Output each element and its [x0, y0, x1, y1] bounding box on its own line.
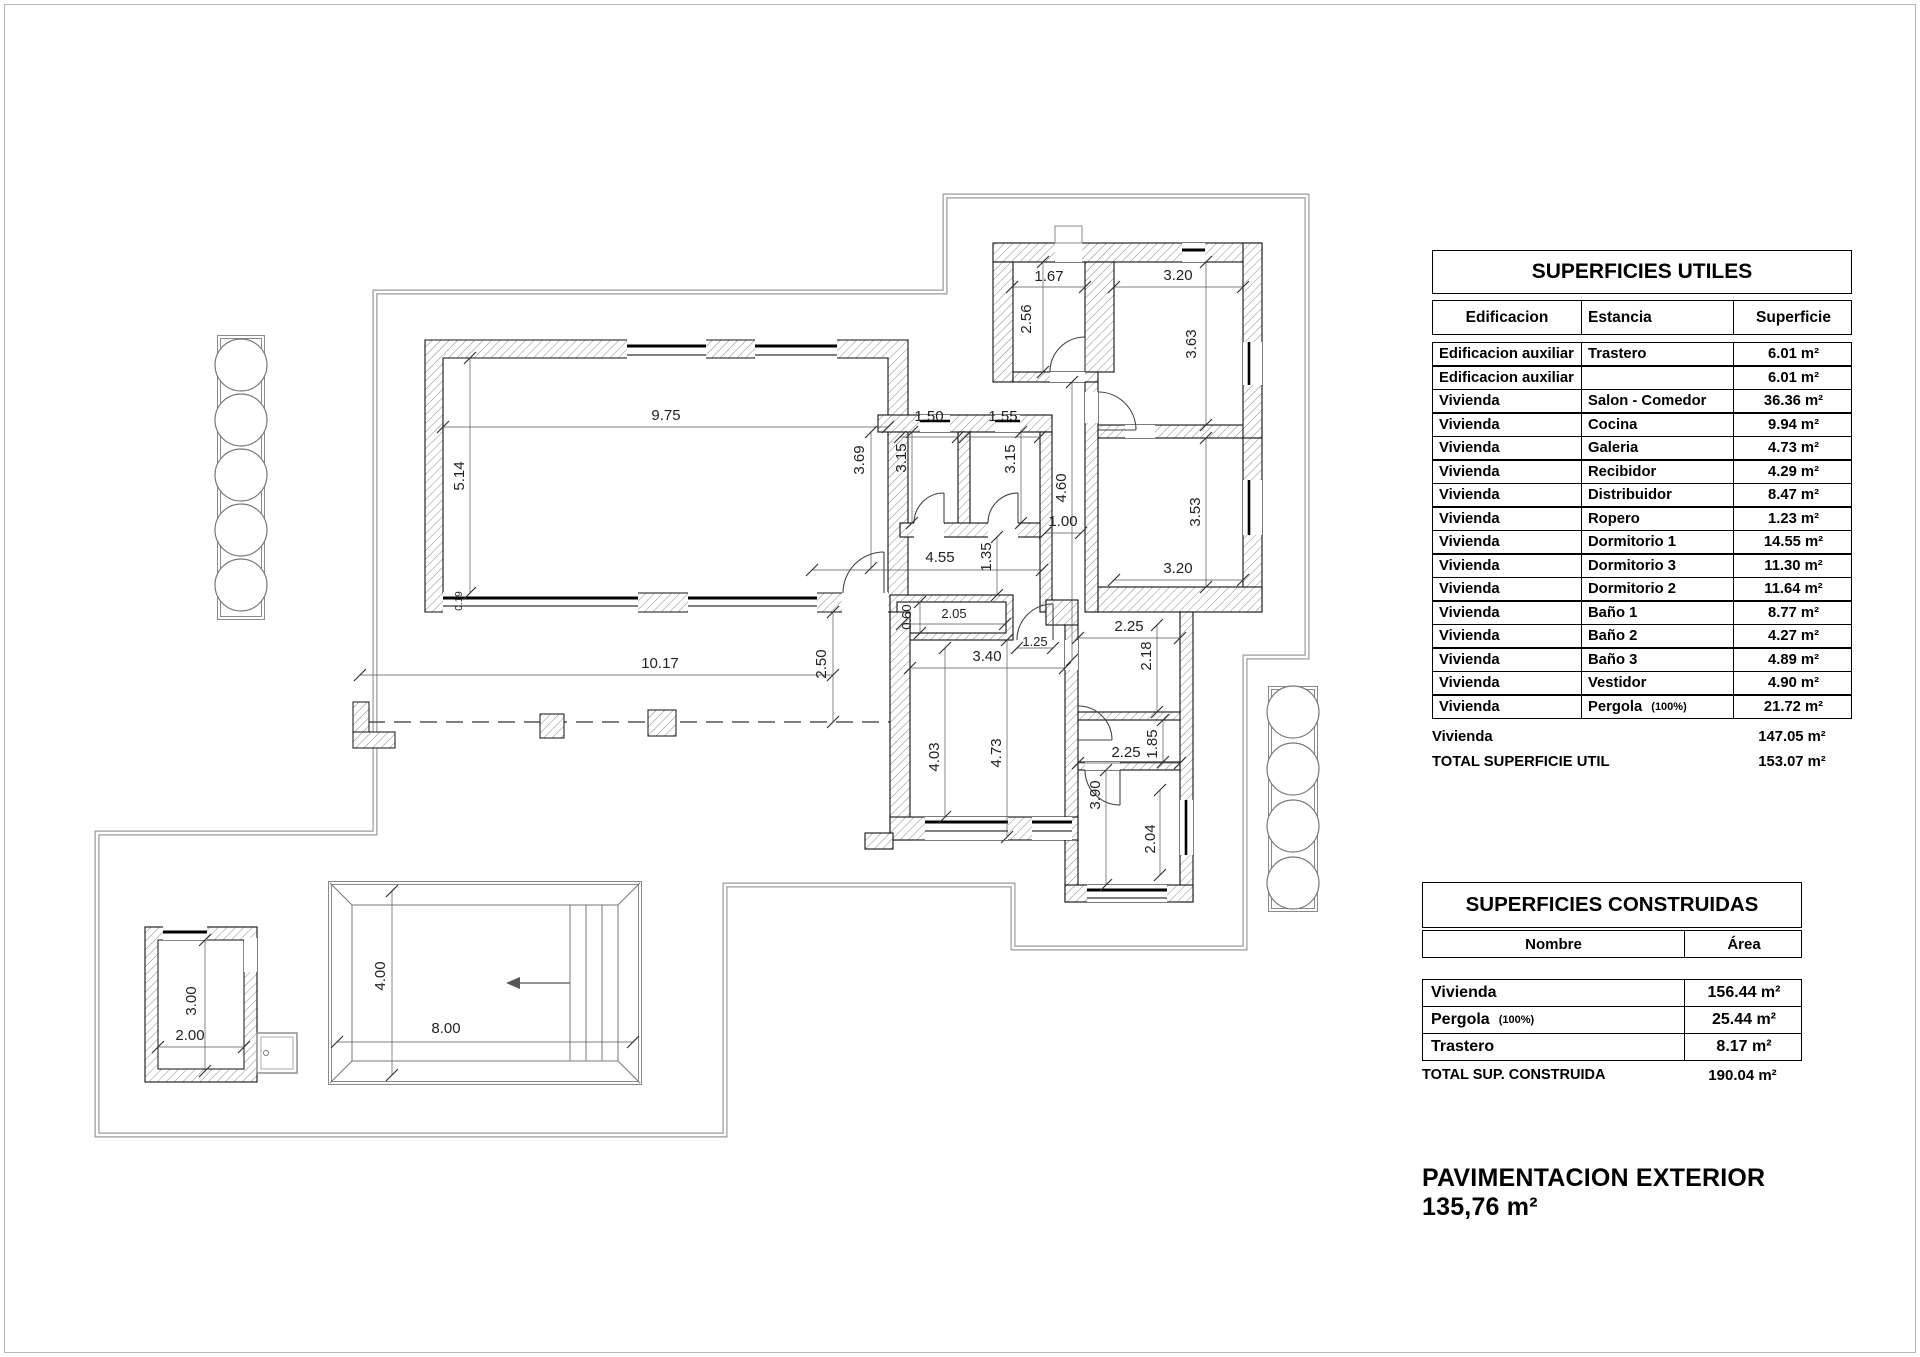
- dimension-label: 3.63: [1183, 329, 1200, 358]
- dimension-label: 4.03: [926, 742, 943, 771]
- dimension-label: 4.73: [988, 738, 1005, 767]
- col-header-area: Área: [1684, 931, 1803, 957]
- dimension-label: 5.14: [451, 461, 468, 490]
- table-row: ViviendaDormitorio 311.30 m²: [1432, 553, 1852, 578]
- table-header: Nombre Área: [1422, 930, 1802, 958]
- table-row: ViviendaDormitorio 114.55 m²: [1432, 530, 1852, 555]
- dimension-label: 3.15: [1002, 444, 1019, 473]
- col-header-edificacion: Edificacion: [1433, 301, 1581, 334]
- dimension-label: 3.15: [893, 443, 910, 472]
- pool-arrow: [506, 977, 570, 989]
- table-row: ViviendaGaleria4.73 m²: [1432, 436, 1852, 461]
- dimension-label: 1.35: [978, 542, 995, 571]
- table-row: ViviendaSalon - Comedor36.36 m²: [1432, 389, 1852, 414]
- superficies-construidas-table: SUPERFICIES CONSTRUIDAS Nombre Área Vivi…: [1422, 882, 1802, 1087]
- table-row: ViviendaCocina9.94 m²: [1432, 412, 1852, 437]
- table-title: SUPERFICIES UTILES: [1432, 250, 1852, 294]
- table-row: Edificacion auxiliar6.01 m²: [1432, 365, 1852, 390]
- summary-row: Vivienda147.05 m²: [1432, 724, 1852, 749]
- dimension-label: 0.60: [899, 604, 914, 629]
- pool-steps: [570, 905, 602, 1061]
- dimension-label: 1.67: [1034, 268, 1063, 285]
- table-row: Trastero8.17 m²: [1422, 1033, 1802, 1061]
- col-header-nombre: Nombre: [1423, 931, 1684, 957]
- dimension-label: 1.25: [1022, 634, 1047, 649]
- dimension-label: 2.25: [1111, 744, 1140, 761]
- dimension-label: 4.55: [925, 549, 954, 566]
- dimension-label: 3.20: [1163, 267, 1192, 284]
- table-row: ViviendaBaño 24.27 m²: [1432, 624, 1852, 649]
- table-rows: Edificacion auxiliarTrastero6.01 m²Edifi…: [1432, 342, 1852, 719]
- dimension-label: 3.90: [1087, 780, 1104, 809]
- dimension-label: 3.69: [851, 445, 868, 474]
- dimension-label: 0.19: [454, 591, 465, 611]
- table-total-row: TOTAL SUP. CONSTRUIDA 190.04 m²: [1422, 1063, 1802, 1087]
- dimension-label: 2.04: [1142, 824, 1159, 853]
- dimension-label: 3.00: [183, 986, 200, 1015]
- dimension-label: 8.00: [431, 1020, 460, 1037]
- table-row: Edificacion auxiliarTrastero6.01 m²: [1432, 342, 1852, 367]
- table-summary: Vivienda147.05 m²TOTAL SUPERFICIE UTIL15…: [1432, 724, 1852, 774]
- dimension-label: 9.75: [651, 407, 680, 424]
- dimension-label: 3.40: [972, 648, 1001, 665]
- table-row: ViviendaPergola(100%)21.72 m²: [1432, 694, 1852, 719]
- dimension-label: 2.00: [175, 1027, 204, 1044]
- dimension-label: 1.85: [1144, 729, 1161, 758]
- table-row: ViviendaDormitorio 211.64 m²: [1432, 577, 1852, 602]
- table-row: ViviendaBaño 18.77 m²: [1432, 600, 1852, 625]
- dimension-label: 2.05: [941, 606, 966, 621]
- table-header: Edificacion Estancia Superficie: [1432, 300, 1852, 335]
- plot-boundary: [97, 196, 1307, 1135]
- dimension-label: 1.50: [914, 408, 943, 425]
- dimension-label: 1.00: [1048, 513, 1077, 530]
- tree-icon: [1267, 686, 1319, 909]
- col-header-superficie: Superficie: [1733, 301, 1853, 334]
- table-row: ViviendaVestidor4.90 m²: [1432, 671, 1852, 696]
- house-walls: [425, 243, 1262, 902]
- dimension-label: 4.00: [372, 961, 389, 990]
- total-label: TOTAL SUP. CONSTRUIDA: [1422, 1063, 1683, 1087]
- dimension-label: 2.50: [813, 649, 830, 678]
- table-title: SUPERFICIES CONSTRUIDAS: [1422, 882, 1802, 928]
- table-row: ViviendaRecibidor4.29 m²: [1432, 459, 1852, 484]
- dimension-label: 10.17: [641, 655, 679, 672]
- dimension-label: 1.55: [988, 408, 1017, 425]
- dimension-label: 2.56: [1018, 304, 1035, 333]
- table-row: Vivienda156.44 m²: [1422, 979, 1802, 1007]
- dimension-label: 4.60: [1053, 473, 1070, 502]
- summary-row: TOTAL SUPERFICIE UTIL153.07 m²: [1432, 749, 1852, 774]
- col-header-estancia: Estancia: [1581, 301, 1733, 334]
- table-rows: Vivienda156.44 m²Pergola(100%)25.44 m²Tr…: [1422, 979, 1802, 1062]
- dimension-label: 3.53: [1187, 497, 1204, 526]
- trastero-outbuilding: [145, 926, 297, 1082]
- table-row: Pergola(100%)25.44 m²: [1422, 1006, 1802, 1034]
- table-row: ViviendaRopero1.23 m²: [1432, 506, 1852, 531]
- dimension-label: 2.18: [1138, 641, 1155, 670]
- pergola-pillars: [353, 702, 676, 748]
- planter-right: [1267, 686, 1319, 910]
- total-value: 190.04 m²: [1683, 1063, 1802, 1087]
- pavimentacion-exterior-note: PAVIMENTACION EXTERIOR 135,76 m²: [1422, 1164, 1842, 1222]
- entrance-step: [1055, 226, 1082, 243]
- dimension-label: 3.20: [1163, 560, 1192, 577]
- pergola-dashed-line: [353, 702, 890, 748]
- table-row: ViviendaBaño 34.89 m²: [1432, 647, 1852, 672]
- dimension-label: 2.25: [1114, 618, 1143, 635]
- tree-icon: [215, 339, 267, 611]
- drawing-sheet: 9.755.140.193.691.501.553.153.151.672.56…: [0, 0, 1920, 1357]
- table-row: ViviendaDistribuidor8.47 m²: [1432, 483, 1852, 508]
- superficies-utiles-table: SUPERFICIES UTILES Edificacion Estancia …: [1432, 250, 1852, 774]
- planter-left: [215, 337, 267, 618]
